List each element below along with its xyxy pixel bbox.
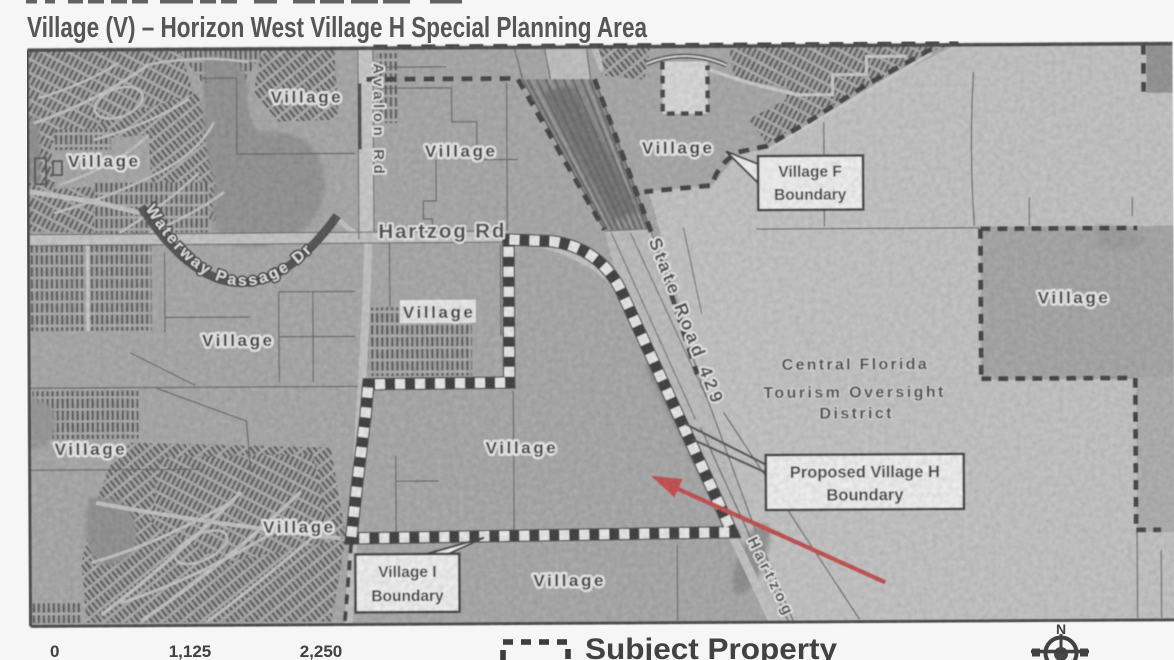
svg-text:2,250: 2,250 xyxy=(300,642,343,660)
svg-text:0: 0 xyxy=(50,642,59,660)
svg-text:1,125: 1,125 xyxy=(169,642,212,660)
svg-text:Subject Property: Subject Property xyxy=(585,633,837,660)
svg-text:Village (V) – Horizon West Vil: Village (V) – Horizon West Village H Spe… xyxy=(27,12,648,44)
